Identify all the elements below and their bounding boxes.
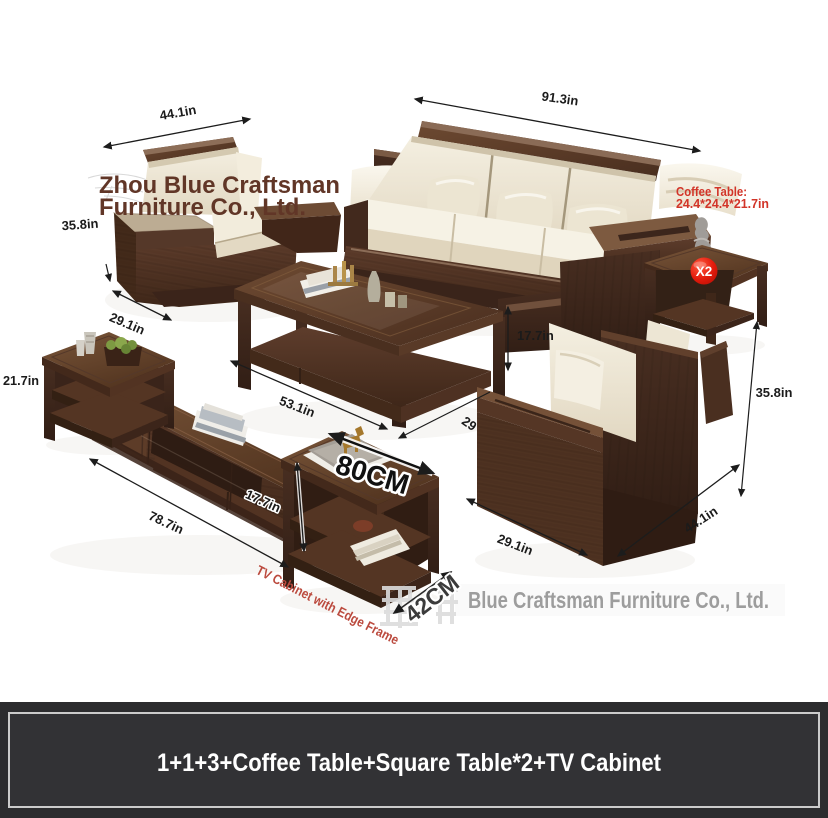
svg-text:24.4*24.4*21.7in: 24.4*24.4*21.7in [676, 196, 769, 211]
svg-text:21.7in: 21.7in [3, 373, 39, 388]
svg-text:X2: X2 [696, 264, 713, 279]
svg-text:17.7in: 17.7in [517, 328, 554, 343]
svg-text:35.8in: 35.8in [61, 216, 99, 234]
svg-text:Furniture Co., Ltd.: Furniture Co., Ltd. [99, 194, 306, 221]
svg-text:35.8in: 35.8in [756, 385, 793, 400]
svg-text:Blue Craftsman Furniture Co.,: Blue Craftsman Furniture Co., Ltd. [468, 587, 769, 613]
svg-text:1+1+3+Coffee Table+Square Tabl: 1+1+3+Coffee Table+Square Table*2+TV Cab… [157, 749, 662, 777]
